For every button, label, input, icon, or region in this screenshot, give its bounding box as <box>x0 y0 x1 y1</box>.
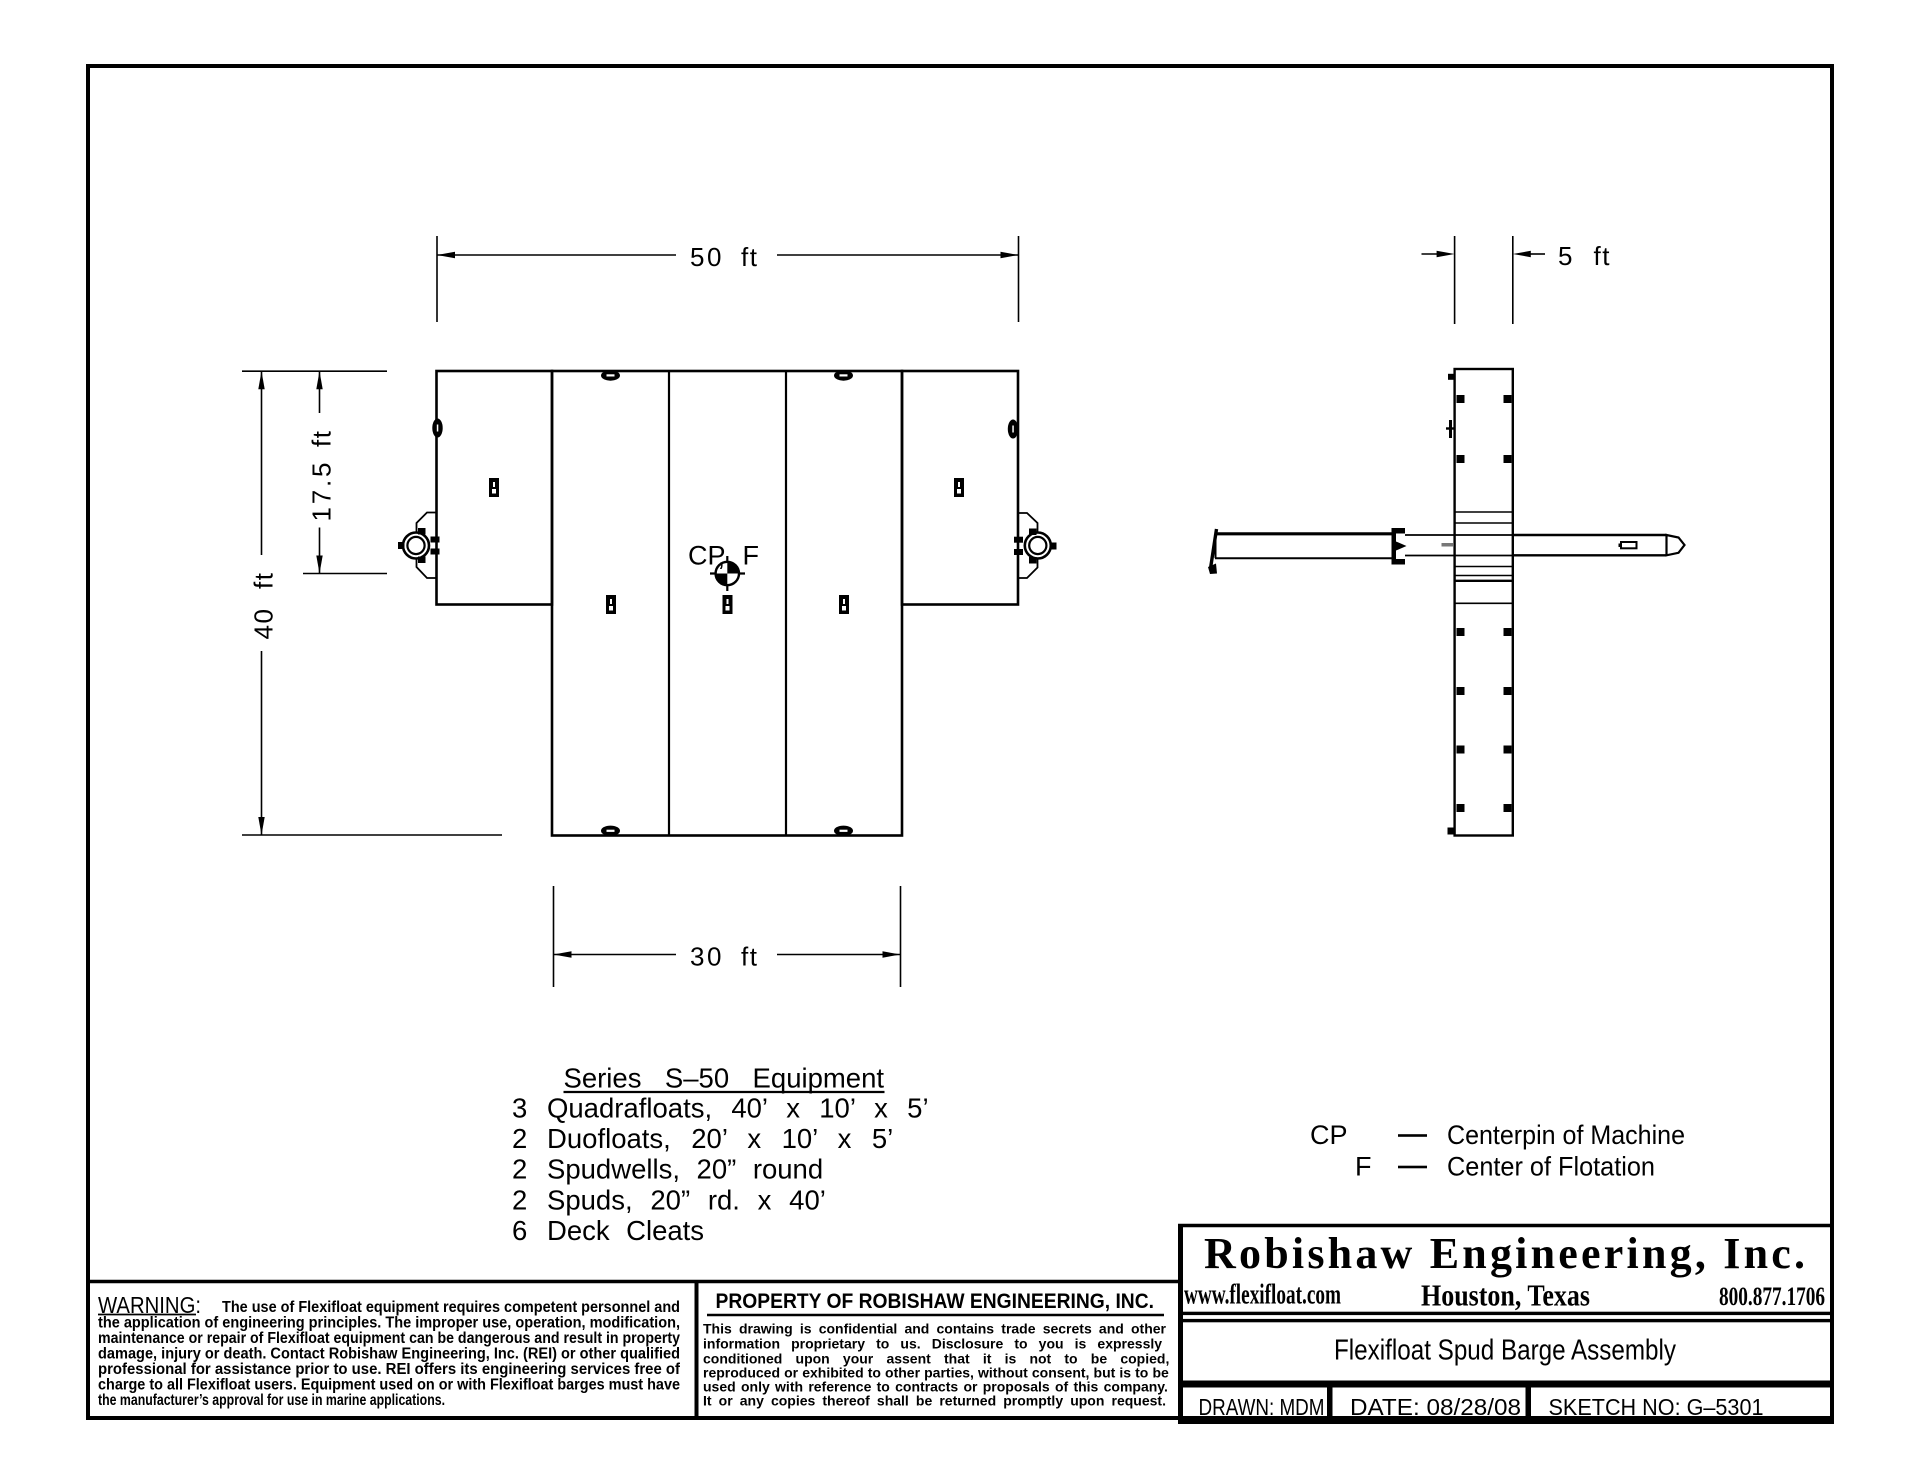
svg-text:PROPERTY OF ROBISHAW ENGINEERI: PROPERTY OF ROBISHAW ENGINEERING, INC. <box>716 1289 1155 1313</box>
svg-text:Series S–50 Equipment: Series S–50 Equipment <box>564 1063 885 1094</box>
svg-text:Spudwells, 20” round: Spudwells, 20” round <box>547 1154 823 1185</box>
svg-text:40: 40 <box>249 608 279 640</box>
svg-text:the manufacturer’s approval fo: the manufacturer’s approval for use in m… <box>98 1392 445 1409</box>
svg-text:ft: ft <box>249 572 279 589</box>
svg-text:ft: ft <box>1594 241 1611 271</box>
svg-text:F: F <box>1355 1152 1372 1182</box>
svg-text:DATE: 08/28/08: DATE: 08/28/08 <box>1350 1394 1521 1420</box>
svg-text:ft: ft <box>741 242 758 272</box>
svg-text:800.877.1706: 800.877.1706 <box>1719 1282 1825 1311</box>
svg-text:CP: CP <box>1310 1120 1348 1150</box>
svg-text:Spuds, 20” rd. x 40’: Spuds, 20” rd. x 40’ <box>547 1184 826 1215</box>
svg-text:Quadrafloats, 40’ x 10’ x 5’: Quadrafloats, 40’ x 10’ x 5’ <box>547 1092 929 1123</box>
svg-text:ft: ft <box>307 430 337 447</box>
svg-text:30: 30 <box>690 942 724 972</box>
svg-text:Houston, Texas: Houston, Texas <box>1421 1278 1590 1313</box>
svg-text:www.flexifloat.com: www.flexifloat.com <box>1184 1280 1341 1311</box>
svg-text:Centerpin of Machine: Centerpin of Machine <box>1447 1120 1685 1150</box>
svg-text:2: 2 <box>512 1123 527 1154</box>
svg-text:SKETCH NO: G–5301: SKETCH NO: G–5301 <box>1549 1394 1764 1420</box>
svg-text:maintenance or repair of Flexi: maintenance or repair of Flexifloat equi… <box>98 1330 680 1347</box>
svg-text:Duofloats, 20’ x 10’ x 5’: Duofloats, 20’ x 10’ x 5’ <box>547 1123 893 1154</box>
svg-text:Robishaw Engineering, Inc.: Robishaw Engineering, Inc. <box>1204 1229 1805 1278</box>
svg-text:DRAWN: MDM: DRAWN: MDM <box>1199 1394 1325 1420</box>
svg-text:information proprietary to us.: information proprietary to us. Disclosur… <box>703 1336 1162 1352</box>
svg-text:5: 5 <box>1558 241 1572 271</box>
svg-text:It or any copies thereof shall: It or any copies thereof shall be return… <box>703 1392 1166 1408</box>
svg-text:,: , <box>718 542 726 572</box>
svg-text:Deck Cleats: Deck Cleats <box>547 1215 704 1246</box>
svg-text:Flexifloat Spud Barge Assembly: Flexifloat Spud Barge Assembly <box>1334 1335 1676 1367</box>
svg-text:50: 50 <box>690 242 724 272</box>
svg-text:professional for assistance pr: professional for assistance prior to use… <box>98 1361 681 1378</box>
svg-text:2: 2 <box>512 1184 527 1215</box>
svg-text:F: F <box>743 541 760 571</box>
svg-text:17.5: 17.5 <box>307 460 337 522</box>
svg-text:3: 3 <box>512 1092 527 1123</box>
svg-text:The use of Flexifloat equipmen: The use of Flexifloat equipment requires… <box>222 1299 680 1316</box>
svg-text:This drawing is confidential a: This drawing is confidential and contain… <box>703 1321 1167 1337</box>
svg-text:2: 2 <box>512 1154 527 1185</box>
svg-text:ft: ft <box>741 942 758 972</box>
svg-text:6: 6 <box>512 1215 527 1246</box>
svg-text:Center of Flotation: Center of Flotation <box>1447 1152 1655 1182</box>
